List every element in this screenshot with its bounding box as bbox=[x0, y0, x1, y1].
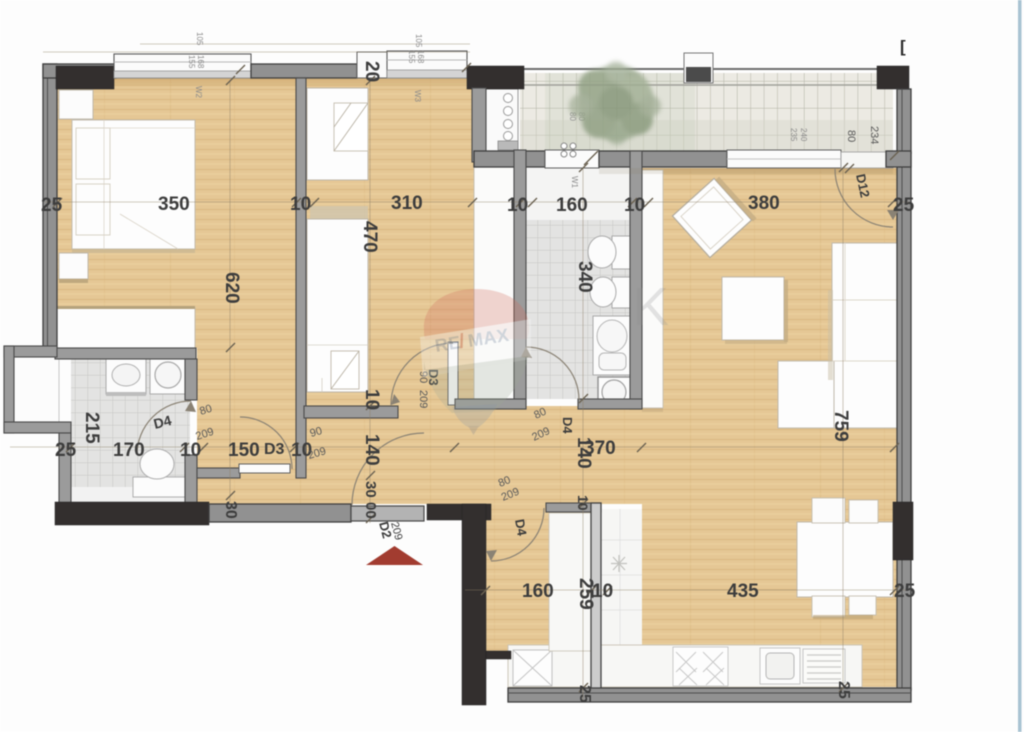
svg-text:340: 340 bbox=[574, 261, 595, 293]
svg-text:168: 168 bbox=[416, 50, 425, 64]
svg-text:W1: W1 bbox=[570, 176, 579, 189]
svg-text:105: 105 bbox=[414, 34, 423, 48]
svg-text:10: 10 bbox=[624, 195, 645, 216]
svg-text:310: 310 bbox=[391, 193, 423, 214]
svg-text:150: 150 bbox=[228, 440, 260, 461]
svg-text:[: [ bbox=[900, 37, 906, 56]
svg-text:168: 168 bbox=[196, 55, 205, 69]
svg-text:140: 140 bbox=[361, 434, 382, 466]
svg-text:D4: D4 bbox=[560, 417, 575, 434]
svg-text:80: 80 bbox=[845, 130, 857, 142]
svg-text:00: 00 bbox=[362, 502, 379, 519]
svg-text:D4: D4 bbox=[512, 518, 530, 538]
svg-text:20: 20 bbox=[361, 61, 382, 82]
svg-text:25: 25 bbox=[41, 195, 63, 216]
svg-text:D3: D3 bbox=[264, 441, 285, 458]
svg-text:25: 25 bbox=[894, 581, 916, 602]
svg-text:10: 10 bbox=[592, 581, 613, 602]
svg-text:K: K bbox=[633, 277, 669, 337]
svg-text:235: 235 bbox=[789, 128, 798, 142]
svg-text:380: 380 bbox=[748, 193, 780, 214]
svg-text:170: 170 bbox=[113, 440, 145, 461]
svg-text:160: 160 bbox=[522, 581, 554, 602]
svg-text:155: 155 bbox=[187, 55, 196, 69]
svg-text:10: 10 bbox=[507, 195, 528, 216]
svg-text:30: 30 bbox=[222, 501, 239, 519]
svg-text:W2: W2 bbox=[194, 86, 203, 99]
svg-text:435: 435 bbox=[727, 581, 759, 602]
svg-text:240: 240 bbox=[799, 128, 808, 142]
svg-text:25: 25 bbox=[576, 685, 593, 703]
svg-text:25: 25 bbox=[55, 440, 77, 461]
svg-text:25: 25 bbox=[835, 681, 852, 699]
svg-text:W3: W3 bbox=[413, 90, 422, 103]
svg-text:30: 30 bbox=[362, 481, 379, 498]
svg-text:10: 10 bbox=[290, 194, 311, 215]
svg-text:370: 370 bbox=[584, 438, 616, 459]
svg-text:10: 10 bbox=[575, 495, 591, 511]
svg-text:470: 470 bbox=[359, 221, 380, 253]
svg-text:25: 25 bbox=[893, 195, 915, 216]
svg-text:234: 234 bbox=[868, 126, 880, 144]
svg-text:10: 10 bbox=[180, 440, 201, 461]
svg-text:155: 155 bbox=[407, 50, 416, 64]
svg-text:209: 209 bbox=[417, 390, 429, 408]
svg-text:160: 160 bbox=[556, 195, 588, 216]
svg-text:215: 215 bbox=[81, 412, 102, 444]
svg-text:759: 759 bbox=[830, 410, 851, 442]
svg-text:105: 105 bbox=[195, 32, 204, 46]
svg-text:620: 620 bbox=[221, 272, 242, 304]
svg-text:10: 10 bbox=[361, 389, 382, 410]
svg-text:350: 350 bbox=[158, 194, 190, 215]
